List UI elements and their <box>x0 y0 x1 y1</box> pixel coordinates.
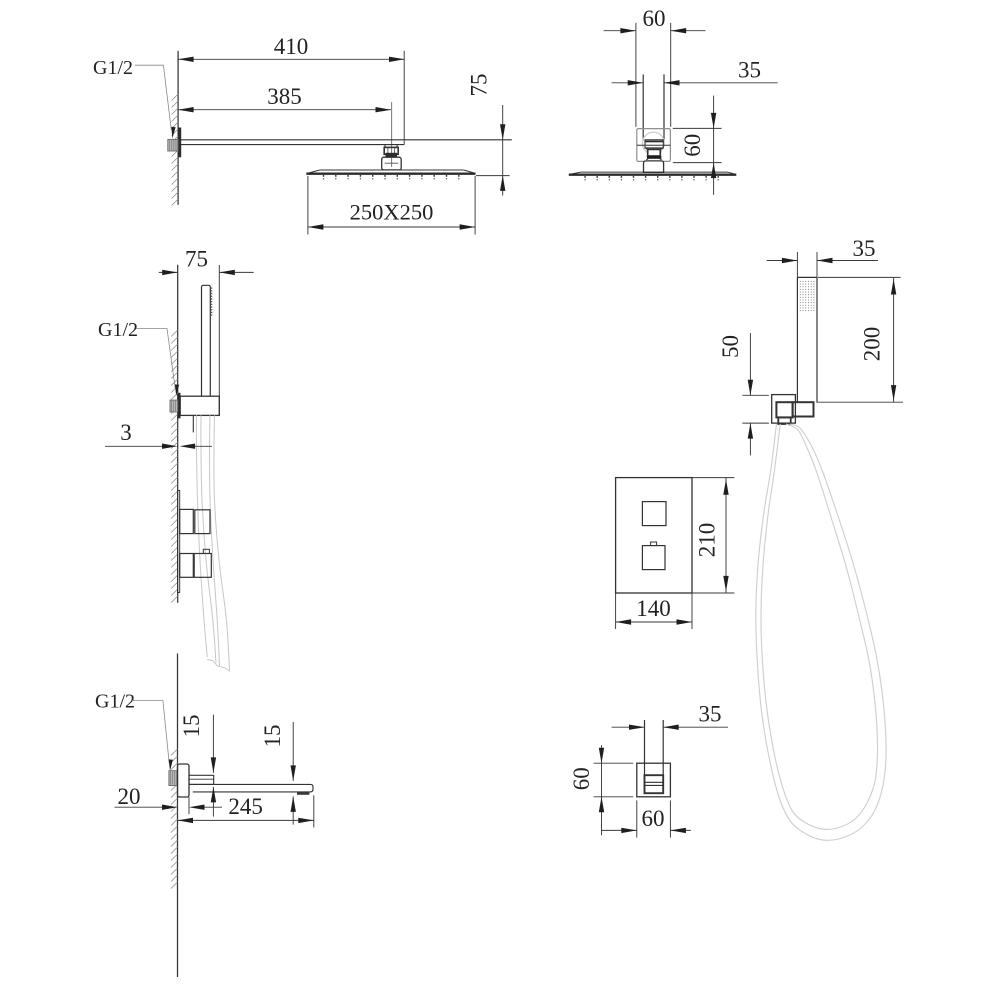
svg-text:250X250: 250X250 <box>350 200 434 225</box>
svg-text:3: 3 <box>120 420 132 445</box>
svg-text:60: 60 <box>569 767 594 790</box>
svg-text:G1/2: G1/2 <box>95 691 135 713</box>
svg-text:60: 60 <box>643 6 666 31</box>
svg-text:G1/2: G1/2 <box>93 57 133 79</box>
svg-text:75: 75 <box>467 74 492 97</box>
svg-text:60: 60 <box>680 134 705 157</box>
svg-text:50: 50 <box>718 335 743 358</box>
svg-text:200: 200 <box>860 327 885 362</box>
svg-text:245: 245 <box>228 794 263 819</box>
svg-text:35: 35 <box>738 58 761 83</box>
svg-text:G1/2: G1/2 <box>98 319 138 341</box>
svg-text:210: 210 <box>695 523 720 558</box>
svg-text:385: 385 <box>267 84 302 109</box>
svg-text:35: 35 <box>853 236 876 261</box>
svg-text:35: 35 <box>699 702 722 727</box>
svg-text:20: 20 <box>118 784 141 809</box>
svg-text:60: 60 <box>642 806 665 831</box>
svg-text:15: 15 <box>260 725 285 748</box>
svg-text:140: 140 <box>636 596 671 621</box>
svg-text:15: 15 <box>179 715 204 738</box>
svg-text:75: 75 <box>185 247 208 272</box>
svg-text:410: 410 <box>274 34 309 59</box>
